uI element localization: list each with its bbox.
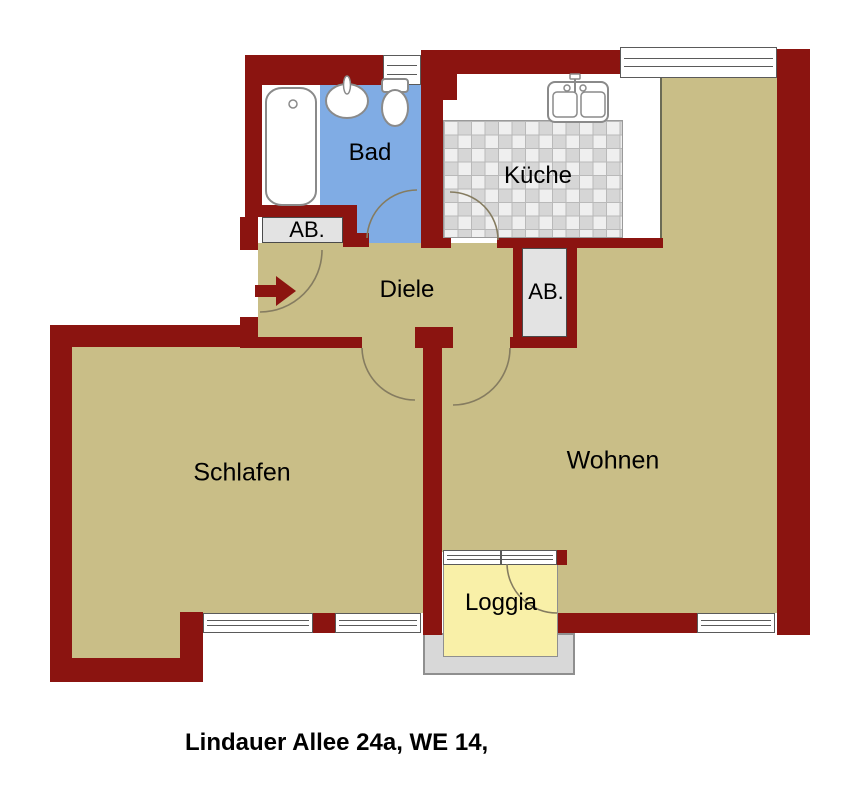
wall-segment xyxy=(343,233,369,247)
room-label-bad: Bad xyxy=(349,141,392,165)
wall-segment xyxy=(245,55,262,217)
wohnen-top-window xyxy=(620,47,777,78)
wall-segment xyxy=(415,327,453,348)
wall-segment xyxy=(567,238,577,348)
wall-segment xyxy=(245,205,352,217)
bad-window xyxy=(383,55,421,85)
wall-segment xyxy=(513,245,522,337)
wall-segment xyxy=(313,613,335,633)
wall-segment xyxy=(423,348,442,635)
room-wohnen-floor-left xyxy=(442,348,577,552)
wall-segment xyxy=(513,337,577,348)
room-label-loggia: Loggia xyxy=(465,591,537,615)
schlafen-window-left xyxy=(203,613,313,633)
wall-segment xyxy=(50,325,72,682)
wall-segment xyxy=(443,238,451,248)
wall-segment xyxy=(421,55,443,248)
plan-caption: Lindauer Allee 24a, WE 14, xyxy=(185,729,488,757)
wall-segment xyxy=(421,50,620,74)
wall-segment xyxy=(258,337,362,348)
wall-segment xyxy=(240,217,258,250)
room-bathtub-area-floor xyxy=(262,85,320,217)
floor-plan: Bad Küche AB. Diele AB. Schlafen Wohnen … xyxy=(0,0,858,786)
room-label-wohnen: Wohnen xyxy=(567,449,660,474)
kitchen-wohnen-boundary-line xyxy=(660,78,662,238)
wall-segment xyxy=(180,612,203,682)
loggia-door-window xyxy=(443,550,557,565)
wohnen-bottom-window xyxy=(697,613,775,633)
room-label-kueche: Küche xyxy=(504,164,572,188)
room-wohnen-floor-upper xyxy=(660,78,777,245)
schlafen-window-right xyxy=(335,613,421,633)
room-wohnen-floor-main xyxy=(577,245,777,613)
room-label-ab-left: AB. xyxy=(289,219,324,241)
wall-segment xyxy=(510,337,522,348)
room-label-diele: Diele xyxy=(380,278,435,302)
room-label-schlafen: Schlafen xyxy=(193,461,290,486)
room-schlafen-floor-extension xyxy=(72,613,180,658)
wall-segment xyxy=(777,49,810,635)
wall-segment xyxy=(558,613,697,633)
wall-segment xyxy=(50,325,258,347)
wall-segment xyxy=(245,55,383,85)
room-label-ab-right: AB. xyxy=(528,281,563,303)
